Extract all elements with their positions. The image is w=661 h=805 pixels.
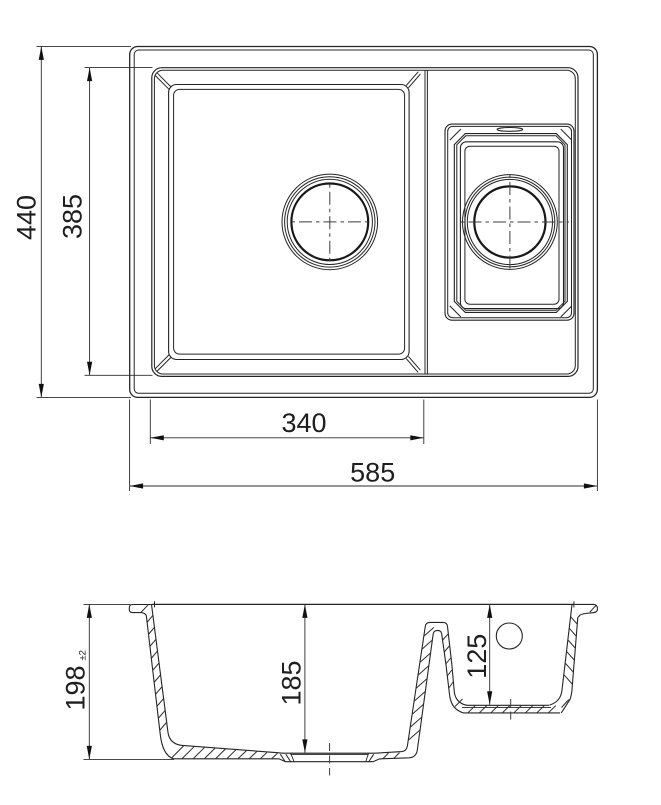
svg-text:125: 125: [462, 634, 492, 679]
svg-text:385: 385: [58, 194, 88, 239]
svg-text:340: 340: [281, 408, 326, 438]
svg-text:198: 198: [61, 665, 91, 710]
svg-text:±2: ±2: [77, 650, 88, 661]
svg-text:440: 440: [12, 195, 42, 240]
svg-text:185: 185: [277, 660, 307, 705]
svg-text:585: 585: [350, 458, 395, 488]
